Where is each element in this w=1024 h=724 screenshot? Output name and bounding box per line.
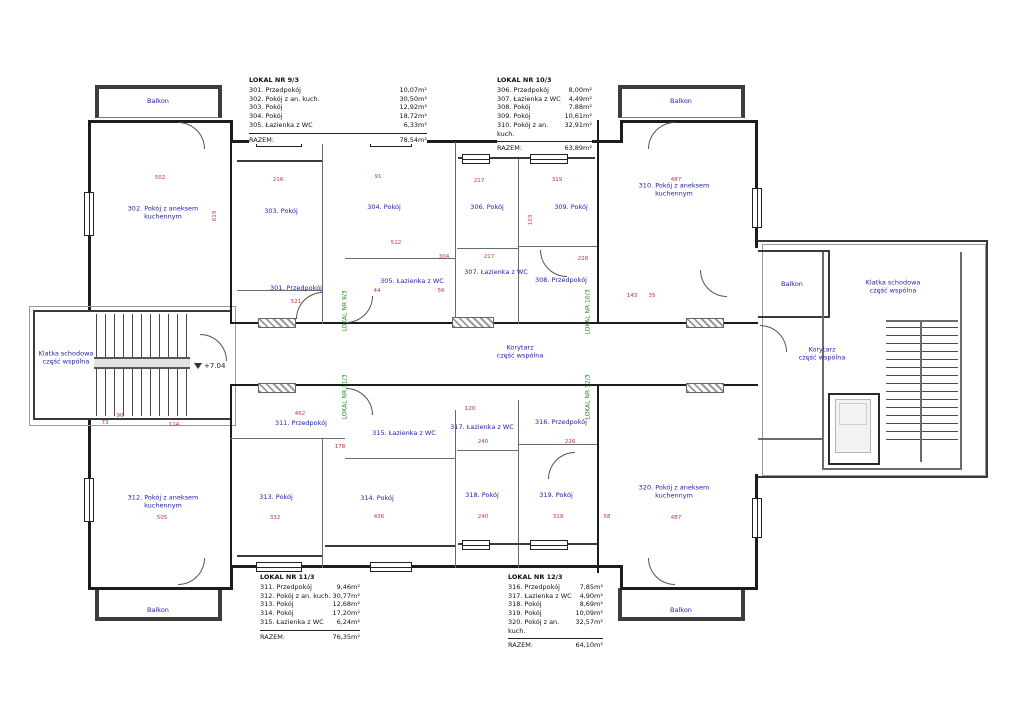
dimension-label: 35	[649, 293, 656, 299]
legend-room-area: 30,77m²	[332, 592, 360, 601]
room-label: Balkon	[147, 606, 169, 614]
stairs-landing	[94, 357, 190, 369]
stairs-right	[886, 322, 958, 440]
dimension-label: 120	[465, 406, 476, 412]
room-label: 319. Pokój	[539, 491, 573, 499]
legend-total-row: RAZEM:78,54m²	[249, 136, 427, 145]
floor-hatch	[686, 318, 724, 328]
dimension-label: 103	[528, 215, 534, 226]
wall	[455, 410, 456, 568]
lokal-marker-label: LOKAL NR 10/3	[585, 289, 592, 334]
room-label: Klatka schodowa część wspólna	[39, 350, 94, 367]
legend-room-area: 9,46m²	[337, 583, 360, 592]
room-label: Balkon	[781, 280, 803, 288]
door-arc	[346, 388, 373, 415]
floor-hatch	[686, 383, 724, 393]
legend-title: LOKAL NR 12/3	[508, 573, 603, 582]
legend-room-name: 319. Pokój	[508, 609, 542, 618]
wall	[345, 458, 455, 459]
dimension-label: 487	[671, 515, 682, 521]
wall	[230, 322, 758, 324]
floor-hatch	[452, 317, 494, 328]
wall	[597, 120, 599, 324]
dimension-label: 521	[291, 299, 302, 305]
room-label: 314. Pokój	[360, 494, 394, 502]
room-label: 310. Pokój z aneksem kuchennym	[639, 182, 710, 199]
legend-total-row: RAZEM:76,35m²	[260, 633, 360, 642]
room-label: 309. Pokój	[554, 203, 588, 211]
legend-room-name: 307. Łazienka z WC	[497, 95, 561, 104]
wall	[822, 468, 962, 470]
window	[752, 188, 762, 228]
room-label: 312. Pokój z aneksem kuchennym	[128, 494, 199, 511]
legend-total-label: RAZEM:	[249, 136, 274, 145]
legend-room-name: 314. Pokój	[260, 609, 294, 618]
legend-lokal-11-3: LOKAL NR 11/3 311. Przedpokój9,46m² 312.…	[260, 573, 360, 641]
wall	[758, 240, 988, 242]
dimension-label: 462	[295, 411, 306, 417]
floor-hatch	[258, 318, 296, 328]
legend-room-area: 12,68m²	[332, 600, 360, 609]
dimension-label: 217	[474, 178, 485, 184]
room-label: 315. Łazienka z WC	[372, 429, 436, 437]
legend-room-name: 302. Pokój z an. kuch.	[249, 95, 320, 104]
dimension-label: 90	[117, 413, 124, 419]
legend-row: 303. Pokój12,92m²	[249, 103, 427, 112]
wall	[33, 418, 230, 420]
wall	[620, 120, 623, 143]
window	[84, 192, 94, 236]
room-label: 318. Pokój	[465, 491, 499, 499]
legend-room-name: 301. Przedpokój	[249, 86, 301, 95]
wall	[230, 384, 758, 386]
legend-row: 313. Pokój12,68m²	[260, 600, 360, 609]
door-arc	[540, 250, 567, 277]
wall	[518, 157, 519, 324]
room-label: 311. Przedpokój	[275, 419, 327, 427]
wall	[518, 246, 597, 247]
dimension-label: 178	[335, 444, 346, 450]
legend-total-value: 64,10m²	[575, 641, 603, 650]
door-arc	[648, 558, 675, 585]
legend-room-name: 320. Pokój z an. kuch.	[508, 618, 575, 636]
legend-room-area: 10,07m²	[399, 86, 427, 95]
door-arc	[178, 558, 205, 585]
room-label: Balkon	[670, 97, 692, 105]
wall	[230, 384, 232, 588]
legend-room-name: 318. Pokój	[508, 600, 542, 609]
legend-total-label: RAZEM:	[260, 633, 285, 642]
legend-row: 311. Przedpokój9,46m²	[260, 583, 360, 592]
legend-room-name: 303. Pokój	[249, 103, 283, 112]
legend-room-name: 313. Pokój	[260, 600, 294, 609]
legend-title: LOKAL NR 10/3	[497, 76, 592, 85]
legend-room-name: 305. Łazienka z WC	[249, 121, 313, 130]
dimension-label: 619	[212, 211, 218, 222]
dimension-label: 228	[578, 256, 589, 262]
wall	[88, 587, 233, 590]
legend-room-area: 10,61m²	[564, 112, 592, 121]
legend-room-name: 304. Pokój	[249, 112, 283, 121]
dimension-label: 502	[155, 175, 166, 181]
wall	[455, 142, 456, 324]
door-arc	[346, 296, 373, 323]
legend-room-name: 306. Przedpokój	[497, 86, 549, 95]
wall	[237, 555, 322, 557]
room-label: 301. Przedpokój	[270, 284, 322, 292]
window	[256, 562, 302, 572]
wall	[620, 587, 758, 590]
legend-room-area: 6,33m²	[404, 121, 427, 130]
legend-row: 306. Przedpokój8,00m²	[497, 86, 592, 95]
room-label: 303. Pokój	[264, 207, 298, 215]
dimension-label: 240	[478, 439, 489, 445]
door-arc	[178, 122, 205, 149]
legend-row: 305. Łazienka z WC6,33m²	[249, 121, 427, 130]
room-label: Korytarz część wspólna	[799, 346, 846, 363]
dimension-label: 73	[102, 420, 109, 426]
legend-total-row: RAZEM:63,89m²	[497, 144, 592, 153]
legend-total-label: RAZEM:	[497, 144, 522, 153]
legend-lokal-12-3: LOKAL NR 12/3 316. Przedpokój7,85m² 317.…	[508, 573, 603, 650]
wall	[325, 545, 455, 547]
elevation-value: +7.04	[204, 362, 225, 370]
legend-total-value: 78,54m²	[399, 136, 427, 145]
window	[530, 154, 568, 164]
legend-lokal-10-3: LOKAL NR 10/3 306. Przedpokój8,00m² 307.…	[497, 76, 592, 153]
floor-hatch	[258, 383, 296, 393]
door-arc	[648, 122, 675, 149]
legend-row: 301. Przedpokój10,07m²	[249, 86, 427, 95]
legend-row: 310. Pokój z an. kuch.32,91m²	[497, 121, 592, 139]
window	[462, 540, 490, 550]
legend-total-label: RAZEM:	[508, 641, 533, 650]
legend-room-area: 10,09m²	[575, 609, 603, 618]
door-arc	[700, 270, 727, 297]
lokal-marker-label: LOKAL NR 11/3	[342, 374, 349, 419]
wall	[518, 444, 597, 445]
room-label: Balkon	[670, 606, 692, 614]
legend-row: 312. Pokój z an. kuch.30,77m²	[260, 592, 360, 601]
wall	[237, 160, 322, 162]
room-label: Klatka schodowa część wspólna	[866, 279, 921, 296]
legend-row: 320. Pokój z an. kuch.32,57m²	[508, 618, 603, 636]
legend-row: 308. Pokój7,88m²	[497, 103, 592, 112]
wall	[758, 438, 824, 440]
elevation-marker: +7.04	[194, 362, 225, 370]
legend-row: 304. Pokój18,72m²	[249, 112, 427, 121]
dimension-label: 319	[552, 177, 563, 183]
wall	[758, 476, 988, 478]
legend-room-name: 315. Łazienka z WC	[260, 618, 324, 627]
room-label: 313. Pokój	[259, 493, 293, 501]
legend-separator	[260, 630, 360, 631]
legend-row: 316. Przedpokój7,85m²	[508, 583, 603, 592]
legend-room-area: 32,91m²	[564, 121, 592, 139]
legend-room-name: 312. Pokój z an. kuch.	[260, 592, 331, 601]
balcony-bottom-left	[95, 588, 222, 621]
room-label: 308. Przedpokój	[535, 276, 587, 284]
window	[370, 562, 412, 572]
dimension-label: 436	[374, 514, 385, 520]
legend-row: 318. Pokój8,69m²	[508, 600, 603, 609]
room-label: 320. Pokój z aneksem kuchennym	[639, 484, 710, 501]
lokal-marker-label: LOKAL NR 12/3	[585, 374, 592, 419]
dimension-label: 512	[391, 240, 402, 246]
wall	[33, 310, 35, 420]
elevator-car-detail	[839, 403, 867, 425]
wall	[755, 120, 758, 248]
legend-separator	[508, 638, 603, 639]
dimension-label: 505	[157, 515, 168, 521]
legend-room-area: 7,88m²	[569, 103, 592, 112]
wall	[597, 384, 599, 588]
door-arc	[548, 452, 575, 479]
legend-room-name: 316. Przedpokój	[508, 583, 560, 592]
door-arc	[296, 292, 323, 319]
dimension-label: 240	[478, 514, 489, 520]
legend-row: 317. Łazienka z WC4,90m²	[508, 592, 603, 601]
room-label: 304. Pokój	[367, 203, 401, 211]
dimension-label: 91	[375, 174, 382, 180]
floor-plan: +7.04	[0, 0, 1024, 724]
window	[752, 498, 762, 538]
legend-room-area: 17,20m²	[332, 609, 360, 618]
dimension-label: 114	[169, 422, 180, 428]
legend-room-area: 7,85m²	[580, 583, 603, 592]
room-label: 317. Łazienka z WC	[450, 423, 514, 431]
room-label: 316. Przedpokój	[535, 418, 587, 426]
wall	[960, 252, 962, 470]
legend-row: 309. Pokój10,61m²	[497, 112, 592, 121]
legend-room-area: 4,49m²	[569, 95, 592, 104]
dimension-label: 143	[627, 293, 638, 299]
legend-total-row: RAZEM:64,10m²	[508, 641, 603, 650]
dimension-label: 217	[484, 254, 495, 260]
room-label: 302. Pokój z aneksem kuchennym	[128, 205, 199, 222]
elevation-triangle-icon	[194, 363, 202, 369]
wall	[88, 120, 233, 123]
legend-separator	[497, 141, 592, 142]
wall	[33, 310, 230, 312]
wall	[828, 250, 830, 318]
stairs-divider	[920, 322, 922, 462]
legend-room-name: 311. Przedpokój	[260, 583, 312, 592]
legend-room-area: 8,69m²	[580, 600, 603, 609]
legend-room-area: 4,90m²	[580, 592, 603, 601]
wall	[620, 120, 758, 123]
legend-room-name: 310. Pokój z an. kuch.	[497, 121, 564, 139]
wall	[457, 450, 518, 451]
legend-room-name: 308. Pokój	[497, 103, 531, 112]
wall	[886, 320, 958, 322]
wall	[758, 250, 830, 252]
legend-title: LOKAL NR 9/3	[249, 76, 427, 85]
legend-row: 314. Pokój17,20m²	[260, 609, 360, 618]
room-label: 306. Pokój	[470, 203, 504, 211]
window	[84, 478, 94, 522]
legend-room-area: 30,50m²	[399, 95, 427, 104]
legend-row: 315. Łazienka z WC6,24m²	[260, 618, 360, 627]
dimension-label: 56	[438, 288, 445, 294]
legend-lokal-9-3: LOKAL NR 9/3 301. Przedpokój10,07m² 302.…	[249, 76, 427, 144]
room-label: Balkon	[147, 97, 169, 105]
legend-room-name: 317. Łazienka z WC	[508, 592, 572, 601]
wall	[230, 120, 232, 324]
wall	[230, 438, 345, 439]
legend-total-value: 63,89m²	[564, 144, 592, 153]
legend-room-area: 32,57m²	[575, 618, 603, 636]
wall	[986, 240, 988, 478]
room-label: 307. Łazienka z WC	[464, 268, 528, 276]
dimension-label: 44	[374, 288, 381, 294]
legend-row: 302. Pokój z an. kuch.30,50m²	[249, 95, 427, 104]
legend-room-area: 8,00m²	[569, 86, 592, 95]
wall	[758, 316, 830, 318]
legend-room-area: 12,92m²	[399, 103, 427, 112]
dimension-label: 216	[273, 177, 284, 183]
dimension-label: 332	[270, 515, 281, 521]
dimension-label: 304	[439, 254, 450, 260]
window	[462, 154, 490, 164]
legend-total-value: 76,35m²	[332, 633, 360, 642]
window	[530, 540, 568, 550]
legend-room-area: 18,72m²	[399, 112, 427, 121]
legend-title: LOKAL NR 11/3	[260, 573, 360, 582]
legend-row: 307. Łazienka z WC4,49m²	[497, 95, 592, 104]
wall	[457, 248, 518, 249]
dimension-label: 226	[565, 439, 576, 445]
legend-separator	[249, 133, 427, 134]
legend-row: 319. Pokój10,09m²	[508, 609, 603, 618]
dimension-label: 319	[553, 514, 564, 520]
dimension-label: 58	[604, 514, 611, 520]
legend-room-name: 309. Pokój	[497, 112, 531, 121]
room-label: Korytarz część wspólna	[497, 344, 544, 361]
balcony-bottom-right	[618, 588, 745, 621]
wall	[322, 438, 323, 568]
lokal-marker-label: LOKAL NR 9/3	[342, 290, 349, 331]
room-label: 305. Łazienka z WC	[380, 277, 444, 285]
legend-room-area: 6,24m²	[337, 618, 360, 627]
